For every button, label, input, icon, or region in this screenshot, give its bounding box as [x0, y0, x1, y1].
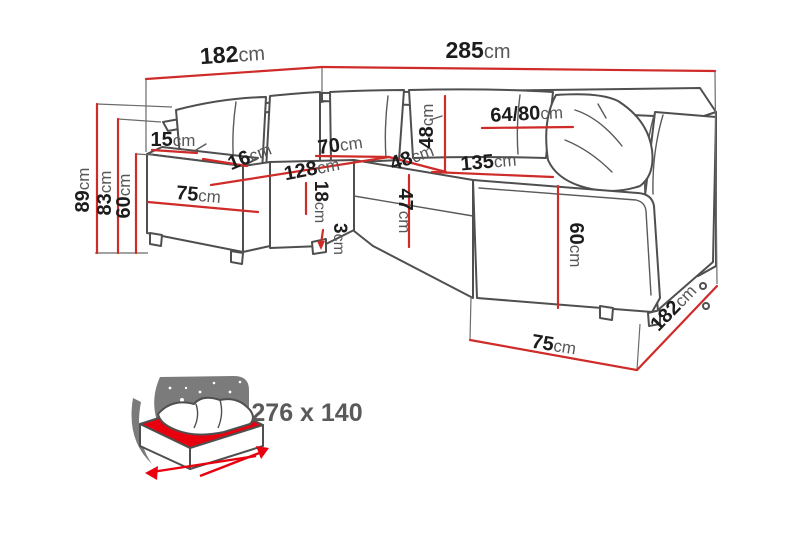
sofa-bed-sleeping-icon	[132, 376, 269, 480]
dim-seat-length-right: 135cm	[460, 149, 518, 176]
dim-seat-cushion-height: 18cm	[310, 181, 331, 223]
sleeping-size-label: 276 x 140	[251, 399, 362, 427]
dim-height-seatback: 60cm	[113, 174, 135, 219]
dim-arm-depth-right: 75cm	[530, 331, 578, 360]
sofa-dimension-diagram: 182cm 285cm 89cm 83cm 60cm 15cm 16cm 75c…	[0, 0, 800, 533]
diagram-canvas: 182cm 285cm 89cm 83cm 60cm 15cm 16cm 75c…	[0, 0, 800, 533]
dim-seat-front-height: 47cm	[394, 189, 416, 234]
dim-width-left: 182cm	[199, 39, 266, 69]
dim-leg-height: 3cm	[329, 223, 350, 255]
dim-arm-height-right: 60cm	[565, 223, 587, 268]
dim-height-total: 89cm	[72, 168, 94, 213]
dim-width-right: 285cm	[445, 37, 510, 63]
dim-armrest-top-width: 15cm	[151, 129, 196, 151]
